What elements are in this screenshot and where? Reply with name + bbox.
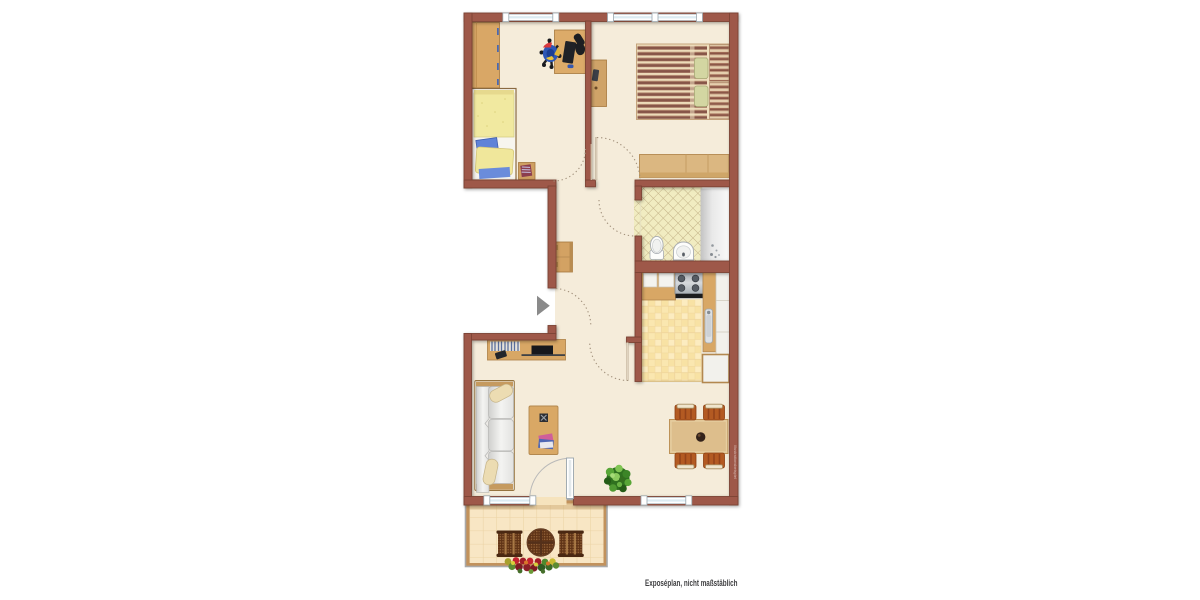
svg-text:Illustrationsbeispiel: Illustrationsbeispiel	[733, 445, 738, 479]
svg-text:Exposéplan, nicht maßstäblich: Exposéplan, nicht maßstäblich	[645, 578, 738, 589]
